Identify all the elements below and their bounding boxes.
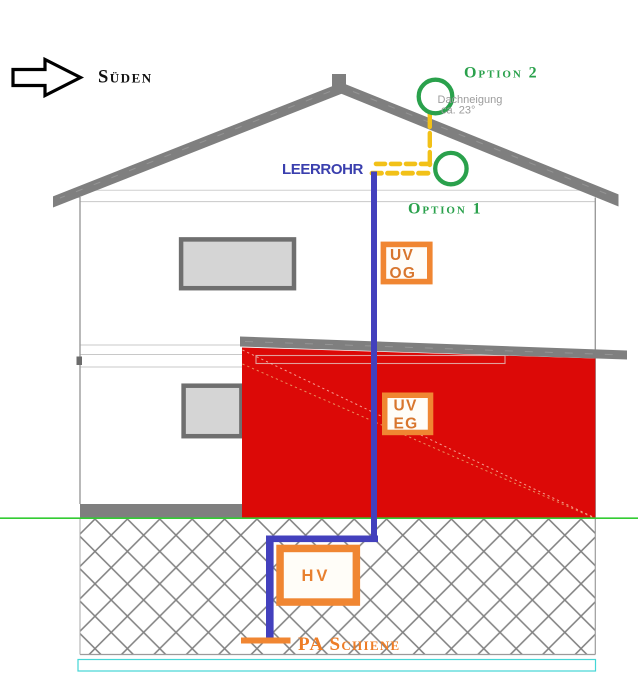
svg-text:ca. 23°: ca. 23°	[441, 104, 475, 116]
svg-text:LEERROHR: LEERROHR	[282, 161, 364, 178]
svg-text:UV: UV	[390, 247, 414, 264]
svg-text:Option 2: Option 2	[464, 65, 538, 82]
svg-text:UV: UV	[394, 398, 418, 415]
svg-text:Option 1: Option 1	[408, 200, 482, 217]
svg-text:HV: HV	[302, 567, 331, 585]
svg-text:OG: OG	[390, 265, 417, 282]
svg-text:Süden: Süden	[98, 67, 153, 87]
svg-text:EG: EG	[394, 415, 419, 432]
svg-text:PA Schiene: PA Schiene	[298, 634, 400, 655]
